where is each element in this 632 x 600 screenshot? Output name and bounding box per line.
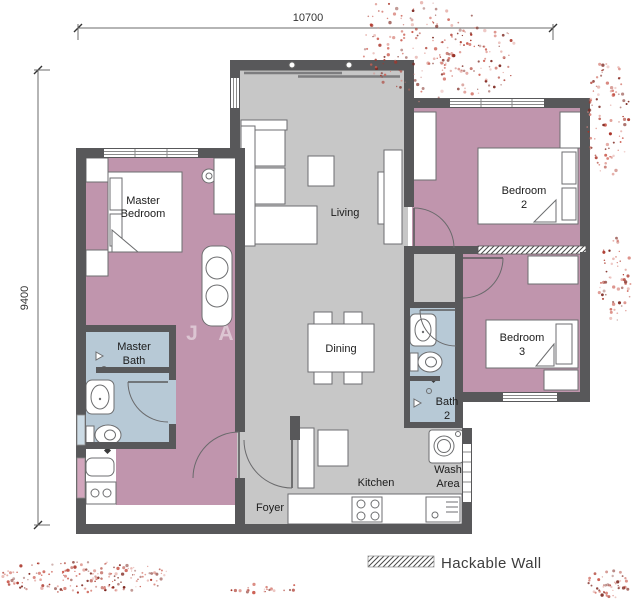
bath2-sink — [410, 314, 436, 346]
hackable-wall-swatch — [368, 556, 434, 567]
bedroom2-label-2: 2 — [521, 199, 527, 211]
wash-area-label-1: Wash — [434, 464, 462, 476]
hackable-wall — [478, 246, 586, 254]
bedroom3-label-2: 3 — [519, 346, 525, 358]
bedroom2-window — [450, 99, 544, 107]
dining-label: Dining — [325, 343, 356, 355]
dimension-left: 9400 — [19, 66, 50, 529]
master-dresser — [202, 246, 232, 326]
living-label: Living — [331, 207, 360, 219]
dimension-top: 10700 — [74, 12, 557, 40]
dimension-left-value: 9400 — [19, 286, 31, 310]
bedroom3-label-1: Bedroom — [500, 332, 545, 344]
bath2-label-1: Bath — [436, 396, 459, 408]
master-bath-sink — [86, 380, 114, 414]
bath2-label-2: 2 — [444, 410, 450, 422]
foyer-label: Foyer — [256, 502, 284, 514]
bedroom3-window — [503, 393, 557, 401]
master-bath-label-1: Master — [117, 341, 151, 353]
coffee-table — [308, 156, 334, 186]
dimension-top-value: 10700 — [293, 12, 324, 24]
washing-machine-icon — [429, 430, 463, 463]
floor-plan-page: J A — [0, 0, 632, 600]
kitchen-label: Kitchen — [358, 477, 395, 489]
legend: Hackable Wall — [368, 555, 542, 572]
wash-area-louver-window — [463, 444, 471, 502]
floor-plan-svg: J A — [0, 0, 632, 600]
master-bath-label-2: Bath — [123, 355, 146, 367]
kitchen-sink-icon — [426, 497, 460, 522]
stove-icon — [352, 497, 382, 522]
master-bedroom-label-1: Master — [126, 195, 160, 207]
master-bedroom-label-2: Bedroom — [121, 208, 166, 220]
master-suite-window — [77, 458, 85, 498]
hackable-wall-label: Hackable Wall — [441, 555, 542, 572]
master-wardrobe — [214, 158, 237, 214]
bath2-toilet-icon — [410, 352, 442, 372]
living-side-window — [231, 78, 239, 108]
wardrobe-strip-floor — [116, 505, 237, 524]
wash-area-label-2: Area — [436, 478, 460, 490]
master-bath-window — [77, 415, 85, 445]
watermark-letter-1: J — [186, 322, 198, 345]
master-bedroom-window — [104, 149, 198, 157]
bedroom2-label-1: Bedroom — [502, 185, 547, 197]
